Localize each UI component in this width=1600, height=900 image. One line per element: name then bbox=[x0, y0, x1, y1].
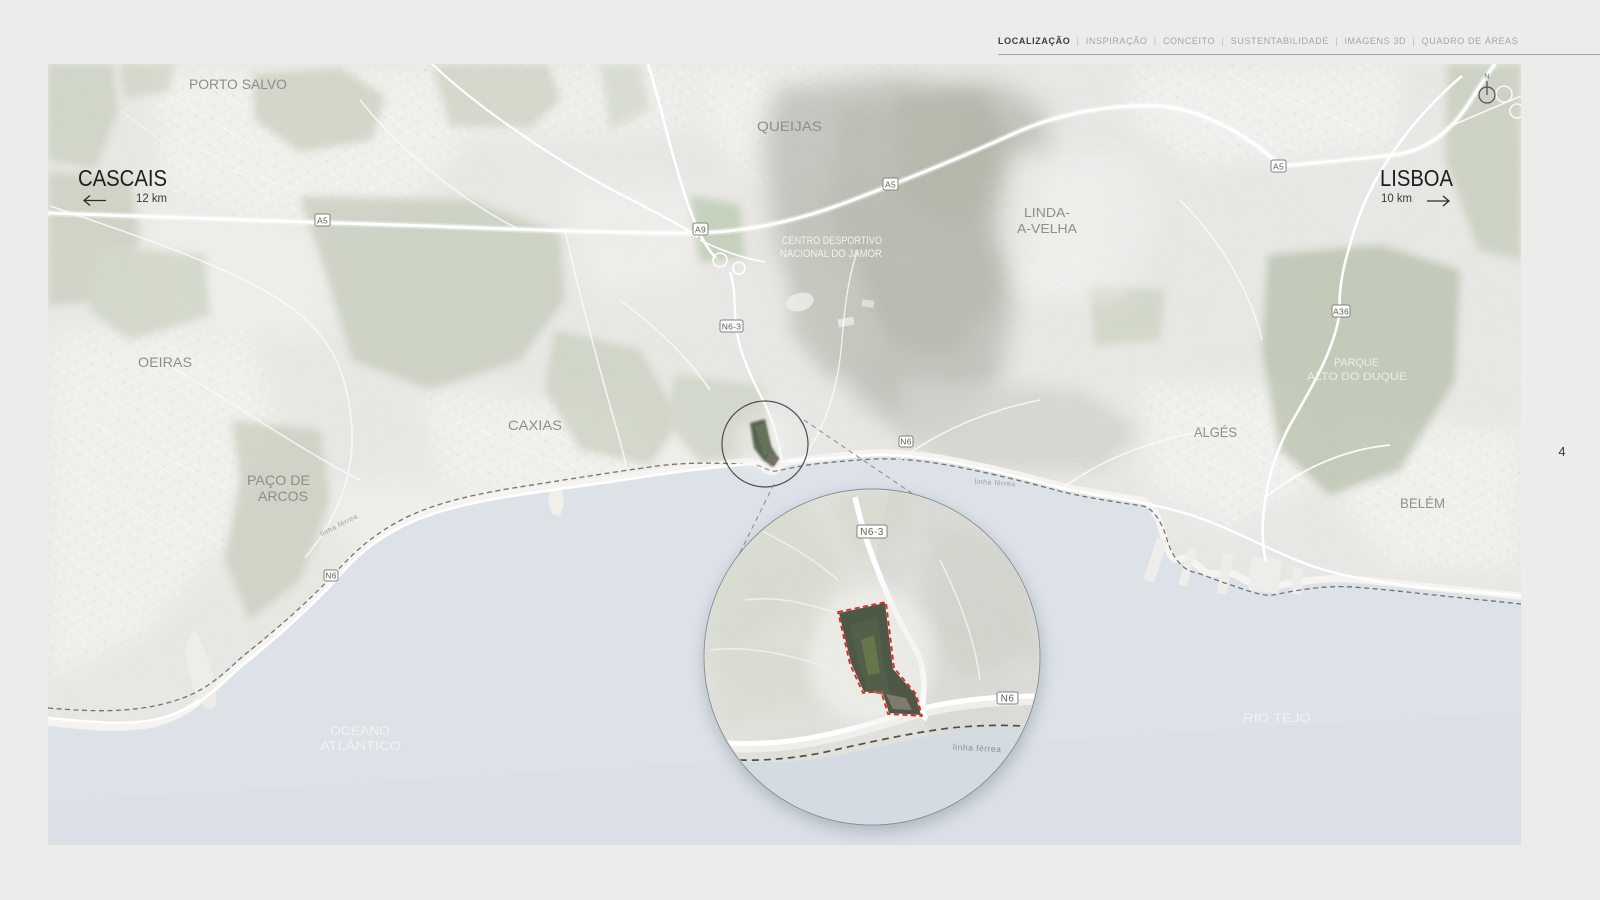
svg-text:A5: A5 bbox=[1273, 162, 1284, 172]
svg-text:N: N bbox=[1484, 72, 1489, 81]
svg-text:A9: A9 bbox=[695, 225, 706, 235]
svg-text:OCEANO: OCEANO bbox=[330, 724, 390, 738]
svg-text:N6: N6 bbox=[325, 571, 336, 581]
svg-text:PARQUE: PARQUE bbox=[1334, 357, 1379, 369]
svg-text:12 km: 12 km bbox=[136, 193, 167, 205]
svg-text:OEIRAS: OEIRAS bbox=[138, 354, 192, 370]
svg-text:A5: A5 bbox=[885, 180, 896, 190]
svg-text:ARCOS: ARCOS bbox=[258, 488, 308, 504]
svg-text:PAÇO DE: PAÇO DE bbox=[247, 472, 310, 488]
svg-text:QUEIJAS: QUEIJAS bbox=[757, 118, 822, 134]
svg-text:BELÉM: BELÉM bbox=[1400, 495, 1445, 511]
svg-text:A36: A36 bbox=[1333, 307, 1349, 317]
svg-text:ALTO DO DUQUE: ALTO DO DUQUE bbox=[1307, 371, 1407, 383]
svg-text:N6: N6 bbox=[1001, 694, 1015, 705]
svg-text:10 km: 10 km bbox=[1381, 193, 1412, 205]
svg-text:A5: A5 bbox=[317, 216, 328, 226]
svg-text:A-VELHA: A-VELHA bbox=[1017, 221, 1077, 236]
svg-text:N6-3: N6-3 bbox=[722, 322, 742, 332]
svg-text:LISBOA: LISBOA bbox=[1380, 165, 1453, 191]
svg-text:CENTRO DESPORTIVO: CENTRO DESPORTIVO bbox=[782, 235, 882, 247]
svg-text:N6-3: N6-3 bbox=[860, 527, 884, 538]
svg-text:CAXIAS: CAXIAS bbox=[508, 417, 562, 433]
svg-text:NACIONAL DO JAMOR: NACIONAL DO JAMOR bbox=[780, 248, 882, 260]
svg-text:LINDA-: LINDA- bbox=[1024, 205, 1070, 220]
svg-text:ATLÂNTICO: ATLÂNTICO bbox=[320, 738, 401, 753]
svg-text:N6: N6 bbox=[900, 437, 911, 447]
svg-text:RIO TEJO: RIO TEJO bbox=[1243, 711, 1311, 725]
svg-text:PORTO SALVO: PORTO SALVO bbox=[189, 76, 287, 92]
svg-text:ALGÉS: ALGÉS bbox=[1194, 424, 1237, 440]
svg-text:CASCAIS: CASCAIS bbox=[78, 165, 167, 191]
